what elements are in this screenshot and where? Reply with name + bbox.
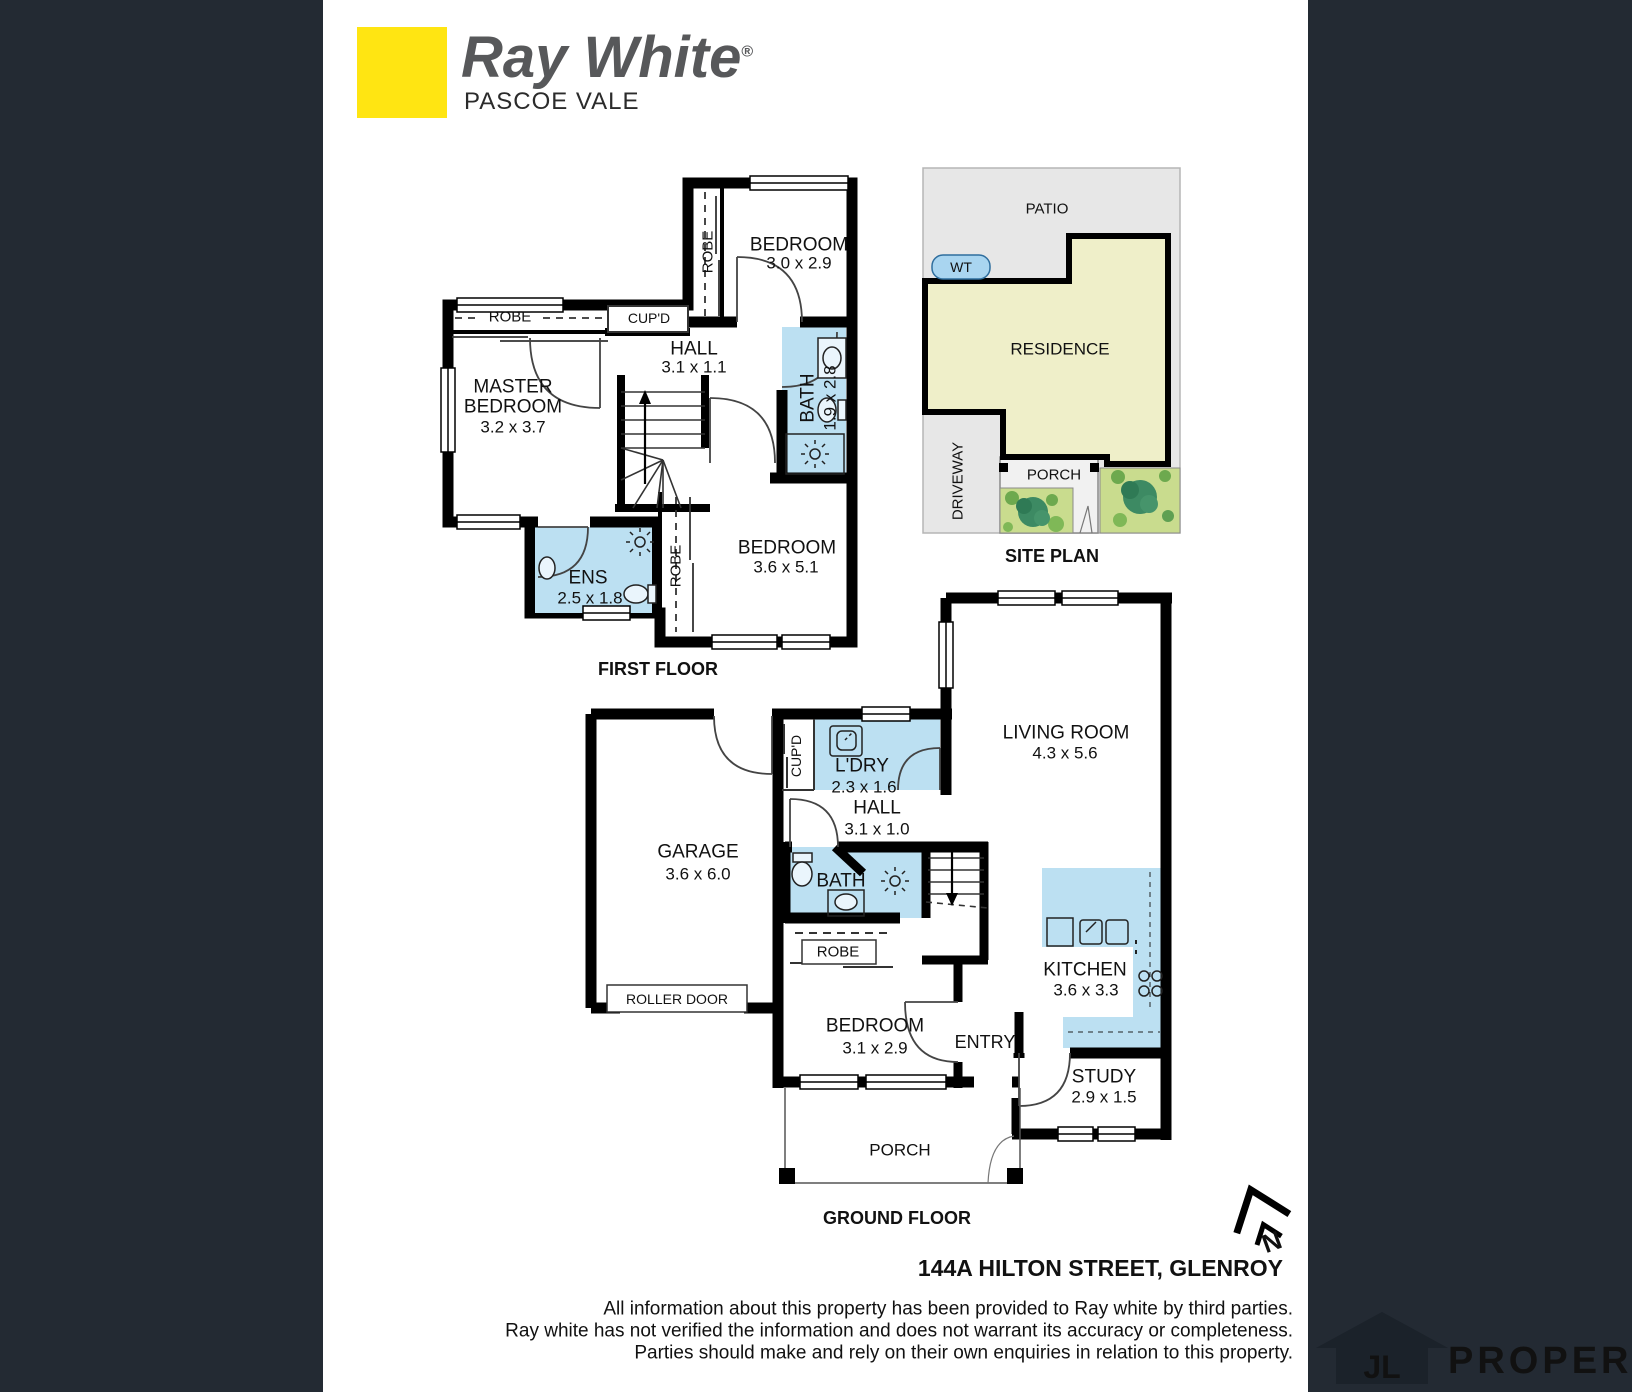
first-floor-plan: BEDROOM 3.0 x 2.9 ROBE ROBE CUP'D HALL 3…: [441, 176, 852, 679]
room-dims-bedroom2: 3.0 x 2.9: [766, 254, 831, 273]
room-label-bedroom3: BEDROOM: [738, 538, 836, 559]
room-label-robe3: ROBE: [668, 545, 685, 588]
room-dims-garage: 3.6 x 6.0: [665, 865, 730, 884]
room-label-hall-ff: HALL: [670, 339, 718, 360]
site-plan: WT PATIO RESIDENCE DRIVEWAY PORCH SITE P…: [923, 168, 1180, 566]
room-dims-living: 4.3 x 5.6: [1032, 744, 1097, 763]
first-floor-title: FIRST FLOOR: [598, 659, 718, 679]
site-plan-title: SITE PLAN: [1005, 546, 1099, 566]
room-label-kitchen: KITCHEN: [1043, 960, 1126, 981]
site-label-porch: PORCH: [1027, 467, 1081, 484]
watermark-text: PROPERTY: [1448, 1340, 1632, 1382]
room-label-ldry: L'DRY: [835, 756, 889, 777]
room-dims-bedroom-gf: 3.1 x 2.9: [842, 1039, 907, 1058]
room-dims-hall-ff: 3.1 x 1.1: [661, 358, 726, 377]
disclaimer-line-3: Parties should make and rely on their ow…: [634, 1343, 1293, 1364]
room-dims-master: 3.2 x 3.7: [480, 418, 545, 437]
watermark-initials: JL: [1363, 1349, 1400, 1385]
site-label-residence: RESIDENCE: [1010, 340, 1109, 359]
room-dims-ldry: 2.3 x 1.6: [831, 778, 896, 797]
room-dims-kitchen: 3.6 x 3.3: [1053, 981, 1118, 1000]
room-label-hall-gf: HALL: [853, 798, 901, 819]
room-label-cupd-gf: CUP'D: [788, 735, 804, 777]
room-dims-bath-ff: 1.9 x 2.8: [821, 365, 840, 430]
room-label-bath-gf: BATH: [816, 871, 865, 892]
ground-floor-plan: CUP'D L'DRY 2.3 x 1.6 LIVING ROOM 4.3 x …: [591, 591, 1172, 1228]
room-dims-hall-gf: 3.1 x 1.0: [844, 820, 909, 839]
room-label-garage: GARAGE: [657, 842, 738, 863]
jl-property-watermark: JL PROPERTY: [1316, 1312, 1632, 1385]
north-arrow-icon: N: [1224, 1180, 1301, 1266]
roller-door-label: ROLLER DOOR: [626, 991, 728, 1007]
room-label-robe-gf: ROBE: [817, 944, 860, 961]
room-label-study: STUDY: [1072, 1067, 1137, 1088]
site-label-wt: WT: [950, 259, 972, 275]
room-label-master-2: BEDROOM: [464, 397, 562, 418]
room-label-bath-ff: BATH: [798, 373, 819, 422]
room-label-bedroom-gf: BEDROOM: [826, 1016, 924, 1037]
property-address: 144A HILTON STREET, GLENROY: [918, 1255, 1283, 1281]
north-label: N: [1258, 1224, 1286, 1259]
room-label-living: LIVING ROOM: [1003, 723, 1130, 744]
room-label-cupd: CUP'D: [628, 310, 670, 326]
room-label-master-1: MASTER: [473, 377, 552, 398]
room-label-robe-master: ROBE: [489, 309, 532, 326]
floorplan-drawing: BEDROOM 3.0 x 2.9 ROBE ROBE CUP'D HALL 3…: [0, 0, 1632, 1392]
room-label-bedroom2: BEDROOM: [750, 235, 848, 256]
room-dims-ens: 2.5 x 1.8: [557, 589, 622, 608]
floorplan-page: Ray White® PASCOE VALE: [0, 0, 1632, 1392]
room-dims-bedroom3: 3.6 x 5.1: [753, 558, 818, 577]
room-label-entry: ENTRY: [955, 1032, 1016, 1052]
site-label-driveway: DRIVEWAY: [950, 442, 967, 520]
site-label-patio: PATIO: [1026, 201, 1069, 218]
room-label-ens: ENS: [568, 568, 607, 589]
disclaimer-line-1: All information about this property has …: [603, 1299, 1293, 1320]
room-label-porch-gf: PORCH: [869, 1141, 930, 1160]
disclaimer-line-2: Ray white has not verified the informati…: [505, 1321, 1293, 1342]
room-dims-study: 2.9 x 1.5: [1071, 1088, 1136, 1107]
room-label-robe2: ROBE: [700, 231, 717, 274]
ground-floor-title: GROUND FLOOR: [823, 1208, 971, 1228]
